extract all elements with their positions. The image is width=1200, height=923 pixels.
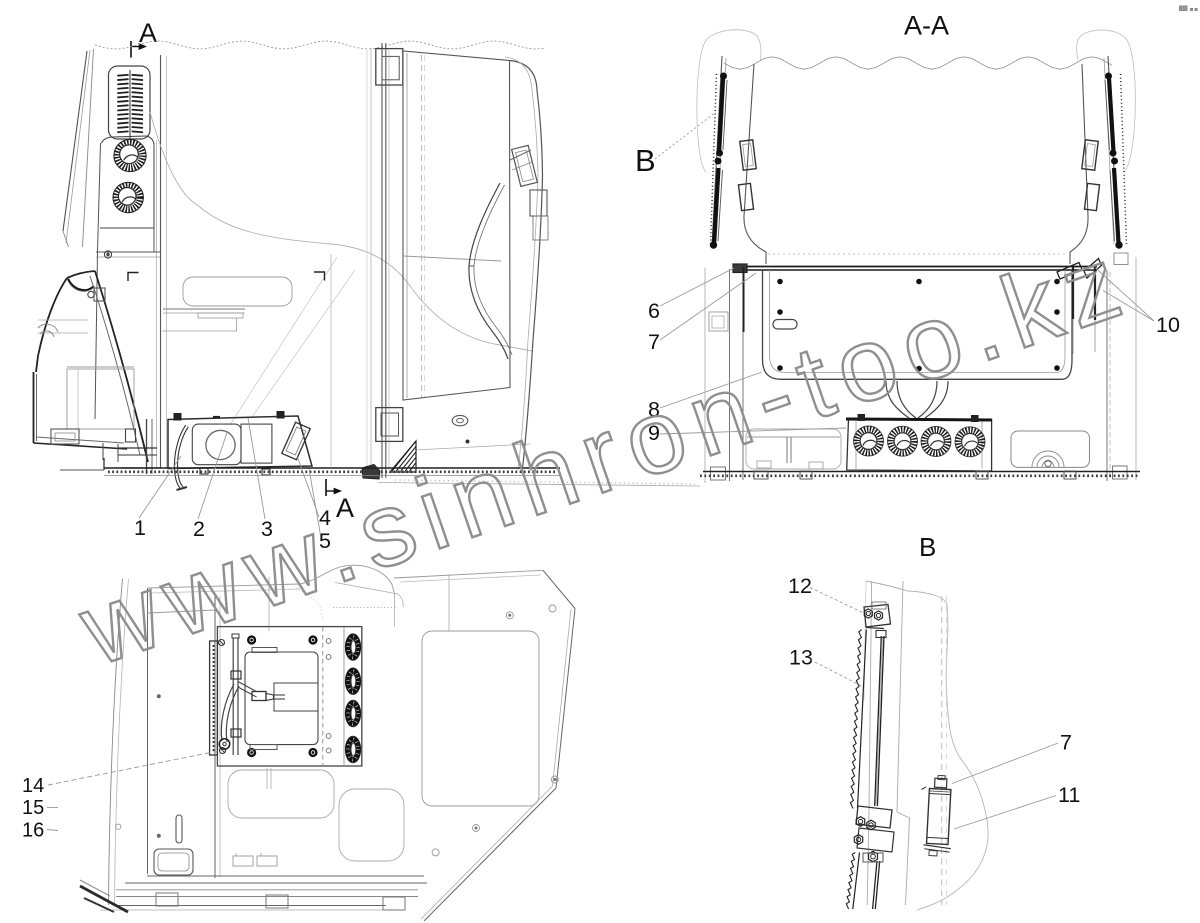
svg-text:A: A <box>139 18 157 48</box>
svg-text:14: 14 <box>22 775 44 797</box>
svg-text:6: 6 <box>648 299 660 323</box>
svg-text:7: 7 <box>648 330 660 354</box>
svg-text:7: 7 <box>1060 731 1072 755</box>
svg-text:10: 10 <box>1156 313 1180 337</box>
svg-text:B: B <box>635 143 656 178</box>
svg-text:www.sinhron-too.kz: www.sinhron-too.kz <box>66 220 1145 688</box>
svg-text:13: 13 <box>789 646 813 670</box>
svg-text:16: 16 <box>22 820 44 842</box>
svg-text:1: 1 <box>134 516 146 540</box>
svg-text:15: 15 <box>22 797 44 819</box>
svg-text:12: 12 <box>788 574 812 598</box>
svg-text:B: B <box>919 532 936 562</box>
svg-text:A-A: A-A <box>904 11 949 41</box>
svg-text:11: 11 <box>1058 783 1080 807</box>
